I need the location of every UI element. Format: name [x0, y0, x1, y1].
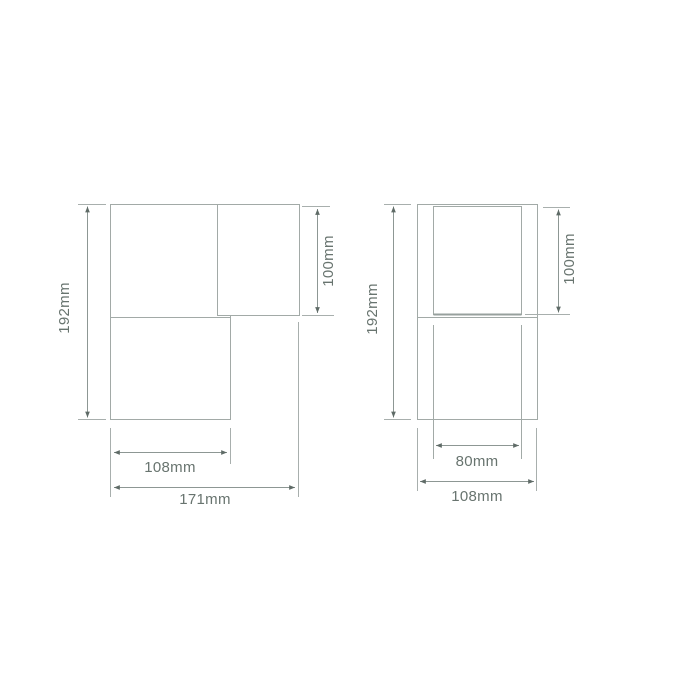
dimension-diagram: 192mm 100mm 108mm 171mm: [0, 0, 700, 700]
left-cylinder-height-label: 100mm: [320, 235, 337, 287]
right-lamp-width-label: 80mm: [456, 453, 499, 470]
right-lamp-face-outline: [434, 207, 522, 315]
right-overall-height-label: 192mm: [364, 283, 381, 335]
right-overall-width-label: 108mm: [451, 488, 503, 505]
left-figure: 192mm 100mm 108mm 171mm: [56, 205, 337, 509]
right-body-outline: [418, 205, 538, 420]
diagram-svg: 192mm 100mm 108mm 171mm: [0, 0, 700, 700]
left-upper-body-outline: [111, 205, 231, 318]
right-lamp-height-label: 100mm: [561, 233, 578, 285]
left-lower-body-outline: [111, 318, 231, 420]
left-cylinder-outline: [218, 205, 300, 316]
left-overall-height-label: 192mm: [56, 282, 73, 334]
right-figure: 192mm 100mm 80mm 108mm: [364, 205, 578, 506]
left-body-width-label: 108mm: [144, 459, 196, 476]
left-overall-depth-label: 171mm: [179, 491, 231, 508]
